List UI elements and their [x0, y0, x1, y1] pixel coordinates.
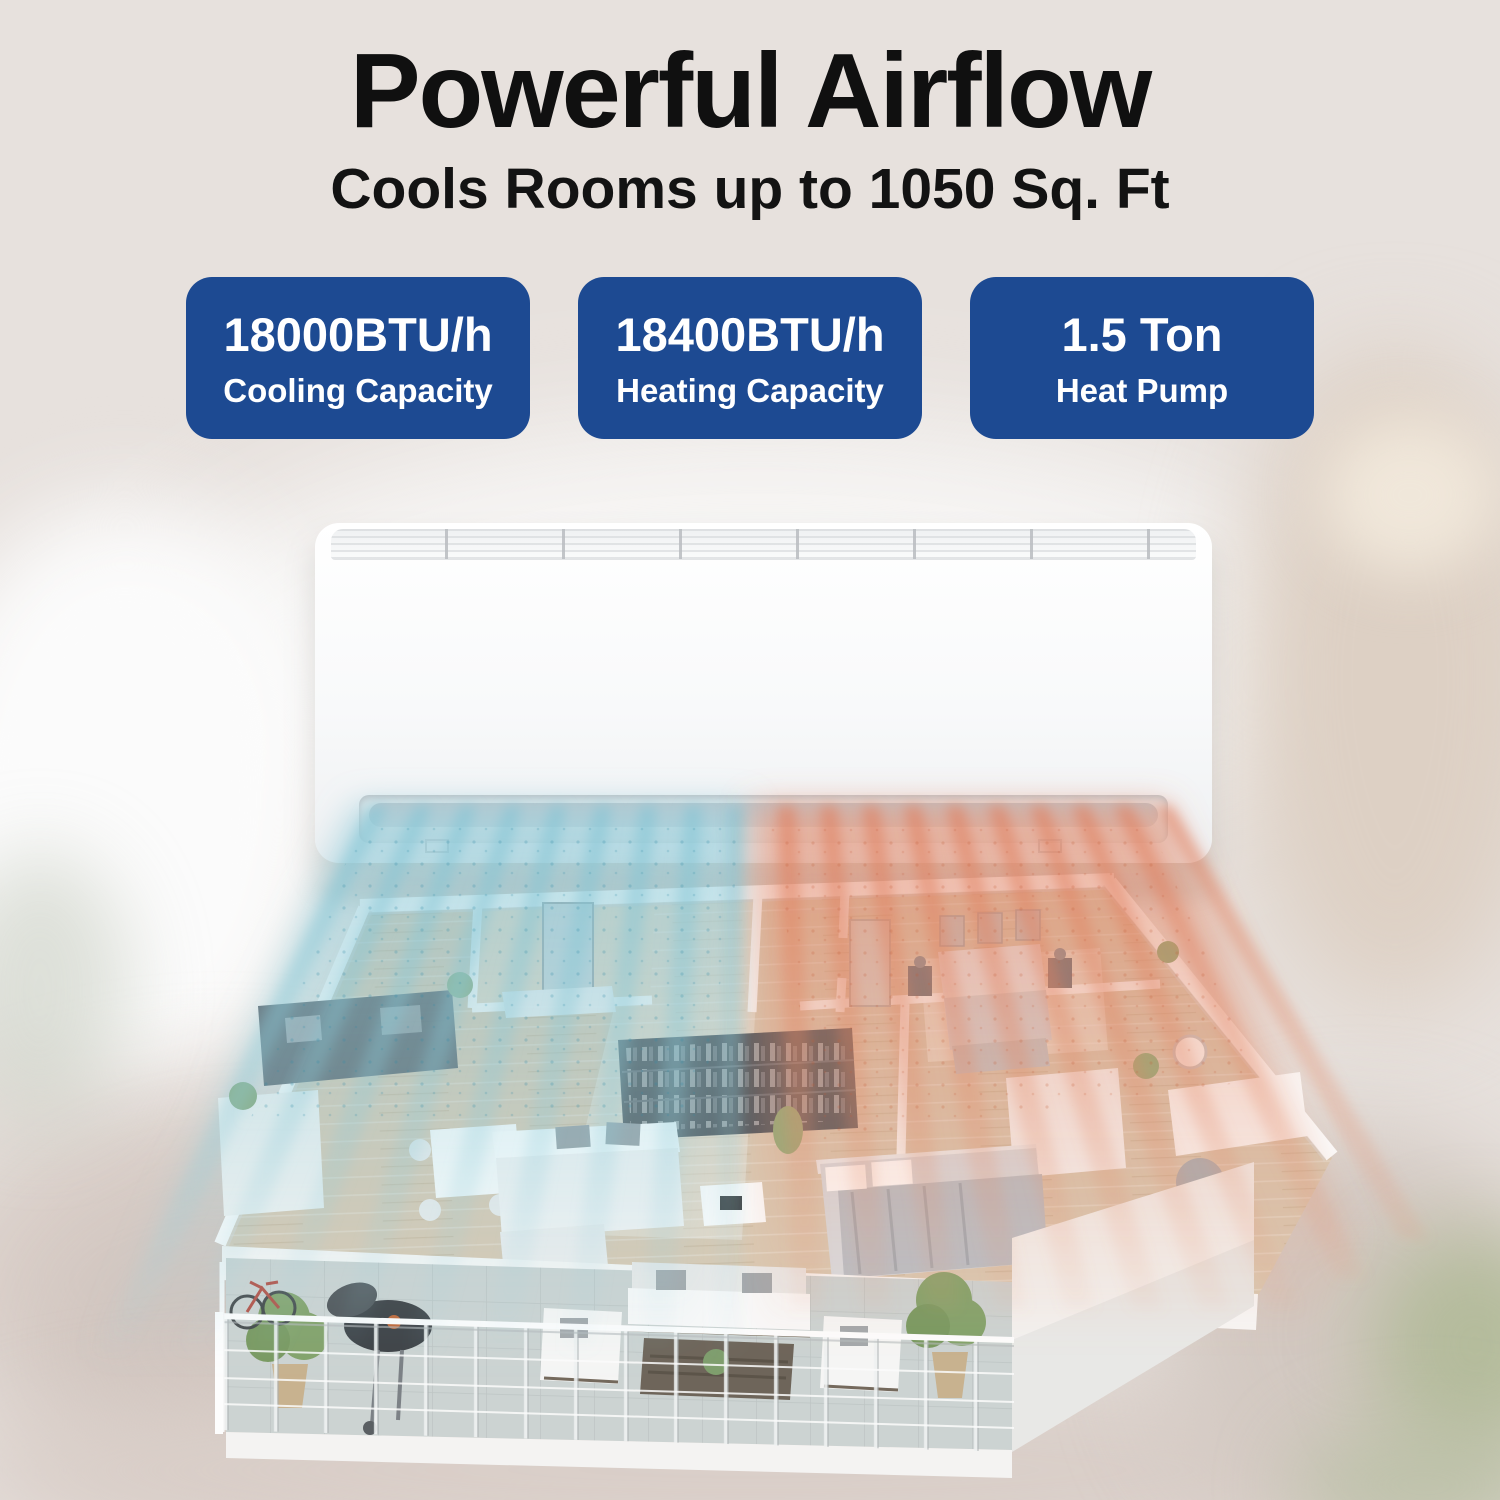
- background-light-spot: [1320, 415, 1500, 575]
- bookshelf: [618, 1028, 858, 1140]
- ac-top-vent: [331, 529, 1196, 560]
- upper-bedroom: [850, 910, 1179, 1079]
- badge-value: 18400BTU/h: [615, 307, 884, 362]
- background-plant-blur-2: [1290, 1420, 1500, 1500]
- balcony: [215, 1258, 1014, 1478]
- bedroom-bed: [816, 1144, 1048, 1280]
- badge-label: Heating Capacity: [616, 372, 884, 410]
- badge-heating-capacity: 18400BTU/h Heating Capacity: [578, 277, 922, 439]
- background-blur-right: [1160, 1130, 1500, 1500]
- subheadline: Cools Rooms up to 1050 Sq. Ft: [0, 156, 1500, 222]
- right-wall-face: [1012, 1162, 1254, 1452]
- balcony-plant-right: [906, 1272, 986, 1398]
- front-wall: [222, 1246, 1258, 1346]
- background-plant-blur: [1370, 1230, 1500, 1460]
- dining-table: [409, 1124, 541, 1221]
- badge-value: 1.5 Ton: [1061, 307, 1222, 362]
- background-blur-left-2: [40, 1190, 480, 1490]
- headline: Powerful Airflow: [0, 36, 1500, 147]
- ad-banner: Powerful Airflow Cools Rooms up to 1050 …: [0, 0, 1500, 1500]
- background-blur-left: [0, 1100, 510, 1460]
- balcony-plant-left: [246, 1292, 328, 1408]
- ac-indoor-unit: [315, 523, 1212, 863]
- interior-walls: [472, 890, 1160, 1268]
- kitchen: [218, 990, 458, 1216]
- bicycle: [231, 1282, 295, 1328]
- bathroom: [447, 903, 616, 1018]
- ac-louver: [359, 795, 1168, 843]
- spec-badges: 18000BTU/h Cooling Capacity 18400BTU/h H…: [0, 277, 1500, 439]
- ac-clip: [425, 839, 449, 853]
- living-room-sofa: [492, 1106, 803, 1274]
- badge-label: Heat Pump: [1056, 372, 1228, 410]
- badge-value: 18000BTU/h: [223, 307, 492, 362]
- apartment-floorplan: [215, 880, 1332, 1478]
- warm-airflow: [752, 804, 1430, 1330]
- right-wall-shade: [1012, 1240, 1254, 1452]
- right-living-area: [1006, 1036, 1308, 1226]
- background-right-wall: [1235, 350, 1500, 1010]
- badge-label: Cooling Capacity: [223, 372, 493, 410]
- background-floor-blur: [0, 1370, 1500, 1500]
- badge-heat-pump: 1.5 Ton Heat Pump: [970, 277, 1314, 439]
- badge-cooling-capacity: 18000BTU/h Cooling Capacity: [186, 277, 530, 439]
- background-plant-blur-3: [0, 850, 130, 1130]
- ac-clip: [1038, 839, 1062, 853]
- background-curtain-blur: [0, 500, 340, 1100]
- cool-airflow: [88, 804, 748, 1360]
- ac-shadow: [312, 870, 1216, 910]
- ac-louver-slat: [369, 803, 1158, 827]
